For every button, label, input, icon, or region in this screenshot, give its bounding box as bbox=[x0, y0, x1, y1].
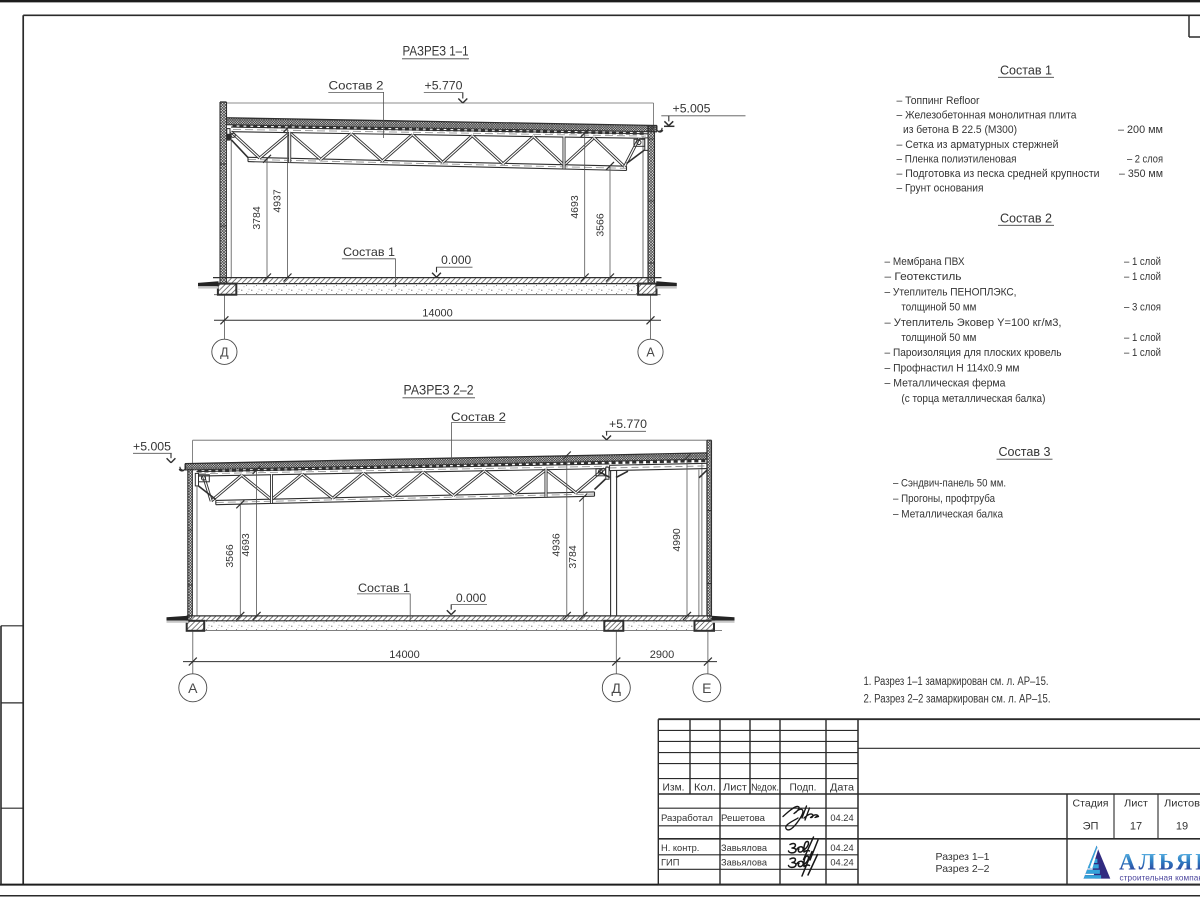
svg-text:– Железобетонная монолитная п: – Железобетонная монолитная плита bbox=[897, 110, 1078, 122]
svg-text:– 1 слой: – 1 слой bbox=[1124, 332, 1161, 344]
svg-text:+5.005: +5.005 bbox=[133, 441, 171, 453]
svg-text:3566: 3566 bbox=[595, 213, 607, 237]
svg-text:– 3 слоя: – 3 слоя bbox=[1124, 302, 1161, 314]
svg-text:– Профнастил Н 114х0.9 мм: – Профнастил Н 114х0.9 мм bbox=[885, 362, 1020, 374]
svg-text:ЭП: ЭП bbox=[1083, 821, 1099, 833]
svg-text:Состав 2: Состав 2 bbox=[451, 410, 506, 424]
svg-text:– Геотекстиль: – Геотекстиль bbox=[885, 271, 962, 283]
svg-text:– Утеплитель Эковер Y=100 кг/м: – Утеплитель Эковер Y=100 кг/м3, bbox=[885, 317, 1062, 329]
svg-text:14000: 14000 bbox=[389, 649, 420, 661]
svg-text:04.24: 04.24 bbox=[830, 858, 853, 868]
svg-text:– Мембрана ПВХ: – Мембрана ПВХ bbox=[885, 256, 966, 268]
svg-text:Стадия: Стадия bbox=[1073, 799, 1109, 810]
svg-text:из бетона В 22.5 (М300): из бетона В 22.5 (М300) bbox=[903, 124, 1017, 136]
svg-text:Е: Е bbox=[702, 680, 711, 696]
svg-text:Лист: Лист bbox=[1124, 799, 1148, 810]
svg-text:А: А bbox=[188, 680, 198, 696]
svg-text:Д: Д bbox=[220, 345, 229, 359]
svg-text:Разработал: Разработал bbox=[661, 813, 713, 823]
svg-text:– Прогоны, профтруба: – Прогоны, профтруба bbox=[893, 493, 996, 505]
svg-text:4937: 4937 bbox=[272, 189, 284, 213]
svg-text:1. Разрез 1–1 замаркирован см.: 1. Разрез 1–1 замаркирован см. л. АР–15. bbox=[864, 676, 1049, 688]
svg-text:– 1 слой: – 1 слой bbox=[1124, 271, 1161, 283]
svg-text:строительная компания: строительная компания bbox=[1120, 873, 1200, 882]
svg-text:19: 19 bbox=[1176, 821, 1188, 833]
svg-text:– Подготовка из песка средней: – Подготовка из песка средней крупности bbox=[897, 168, 1100, 180]
svg-text:– Грунт основания: – Грунт основания bbox=[897, 183, 984, 195]
svg-text:Состав 1: Состав 1 bbox=[1000, 62, 1052, 77]
svg-text:РАЗРЕЗ 2–2: РАЗРЕЗ 2–2 bbox=[404, 383, 474, 398]
svg-text:толщиной 50 мм: толщиной 50 мм bbox=[901, 302, 976, 314]
svg-text:№док.: №док. bbox=[751, 783, 779, 794]
svg-text:– Металлическая ферма: – Металлическая ферма bbox=[885, 378, 1007, 390]
svg-text:Разрез 2–2: Разрез 2–2 bbox=[936, 863, 990, 875]
svg-text:17: 17 bbox=[1130, 821, 1142, 833]
svg-text:4936: 4936 bbox=[551, 533, 563, 557]
svg-text:Листов: Листов bbox=[1164, 799, 1200, 810]
svg-text:+5.770: +5.770 bbox=[609, 419, 647, 431]
svg-text:Подп.: Подп. bbox=[790, 783, 817, 794]
svg-text:Разрез 1–1: Разрез 1–1 bbox=[936, 851, 990, 863]
svg-text:– Топпинг Refloor: – Топпинг Refloor bbox=[897, 95, 980, 107]
svg-text:Завьялова: Завьялова bbox=[721, 843, 768, 853]
svg-text:– 2 слоя: – 2 слоя bbox=[1127, 153, 1163, 165]
svg-text:Состав 1: Состав 1 bbox=[358, 581, 410, 595]
svg-text:– Пароизоляция для плоских кро: – Пароизоляция для плоских кровель bbox=[885, 347, 1062, 359]
svg-text:14000: 14000 bbox=[422, 308, 453, 320]
svg-text:Кол.: Кол. bbox=[694, 783, 716, 794]
svg-text:Лист: Лист bbox=[723, 783, 747, 794]
svg-text:Д: Д bbox=[612, 680, 622, 696]
svg-text:А: А bbox=[646, 345, 655, 359]
svg-text:толщиной 50 мм: толщиной 50 мм bbox=[901, 332, 976, 344]
svg-text:4990: 4990 bbox=[671, 528, 683, 552]
svg-text:3784: 3784 bbox=[251, 206, 263, 230]
svg-text:Завьялова: Завьялова bbox=[721, 858, 768, 868]
svg-text:– Пленка полиэтиленовая: – Пленка полиэтиленовая bbox=[897, 153, 1017, 165]
svg-text:ГИП: ГИП bbox=[661, 858, 679, 868]
svg-text:АЛЬЯНС: АЛЬЯНС bbox=[1119, 850, 1200, 875]
svg-text:04.24: 04.24 bbox=[830, 843, 853, 853]
svg-text:Состав 1: Состав 1 bbox=[343, 245, 395, 259]
svg-text:Состав 3: Состав 3 bbox=[999, 444, 1051, 459]
svg-text:– 350 мм: – 350 мм bbox=[1119, 168, 1163, 180]
svg-text:Изм.: Изм. bbox=[663, 783, 685, 794]
svg-text:– 1 слой: – 1 слой bbox=[1124, 256, 1161, 268]
svg-text:+5.770: +5.770 bbox=[425, 81, 463, 93]
svg-text:Состав 2: Состав 2 bbox=[1000, 210, 1052, 225]
svg-text:РАЗРЕЗ 1–1: РАЗРЕЗ 1–1 bbox=[403, 43, 469, 58]
svg-text:0.000: 0.000 bbox=[456, 593, 486, 605]
svg-text:Н. контр.: Н. контр. bbox=[661, 843, 699, 853]
svg-text:2. Разрез 2–2 замаркирован см.: 2. Разрез 2–2 замаркирован см. л. АР–15. bbox=[864, 694, 1051, 706]
svg-text:– Утеплитель ПЕНОПЛЭКС,: – Утеплитель ПЕНОПЛЭКС, bbox=[885, 286, 1017, 298]
svg-text:4693: 4693 bbox=[569, 195, 581, 219]
svg-text:3784: 3784 bbox=[567, 545, 579, 569]
svg-text:– Сэндвич-панель 50 мм.: – Сэндвич-панель 50 мм. bbox=[893, 478, 1006, 490]
svg-text:0.000: 0.000 bbox=[441, 255, 471, 267]
svg-text:(с торца металлическая балка): (с торца металлическая балка) bbox=[901, 393, 1045, 405]
svg-text:3566: 3566 bbox=[224, 544, 236, 568]
svg-text:Решетова: Решетова bbox=[721, 813, 766, 823]
svg-text:2900: 2900 bbox=[650, 649, 674, 661]
svg-text:Дата: Дата bbox=[830, 783, 854, 794]
svg-text:– Сетка из арматурных стержней: – Сетка из арматурных стержней bbox=[897, 139, 1059, 151]
svg-text:– 1 слой: – 1 слой bbox=[1124, 347, 1161, 359]
svg-text:– 200 мм: – 200 мм bbox=[1118, 124, 1163, 136]
svg-text:+5.005: +5.005 bbox=[673, 103, 711, 115]
svg-text:– Металлическая балка: – Металлическая балка bbox=[893, 509, 1004, 521]
svg-text:Состав 2: Состав 2 bbox=[329, 79, 384, 93]
svg-text:4693: 4693 bbox=[240, 533, 252, 557]
svg-text:04.24: 04.24 bbox=[830, 813, 853, 823]
